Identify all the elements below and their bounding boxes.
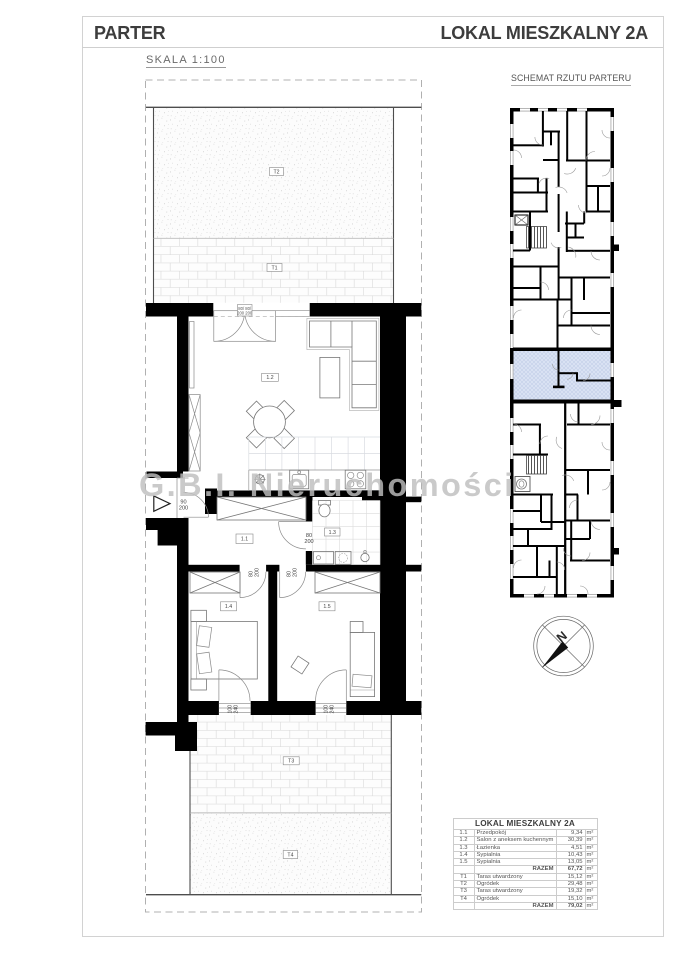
svg-text:T3: T3 [288, 759, 294, 765]
svg-text:200: 200 [304, 539, 313, 545]
svg-text:200: 200 [292, 568, 298, 577]
svg-text:200: 200 [179, 505, 188, 511]
svg-text:1.2: 1.2 [266, 375, 273, 381]
svg-text:T4: T4 [287, 852, 293, 858]
svg-text:1.1: 1.1 [241, 537, 248, 543]
svg-text:1.3: 1.3 [329, 530, 336, 536]
svg-text:240: 240 [233, 705, 239, 714]
svg-text:200: 200 [255, 568, 261, 577]
svg-text:T1: T1 [271, 265, 277, 271]
svg-text:200 200: 200 200 [237, 311, 253, 316]
svg-text:N: N [554, 629, 570, 646]
svg-text:T2: T2 [273, 169, 279, 175]
svg-text:240: 240 [329, 705, 335, 714]
svg-text:1.5: 1.5 [323, 604, 330, 610]
svg-text:1.4: 1.4 [225, 604, 232, 610]
